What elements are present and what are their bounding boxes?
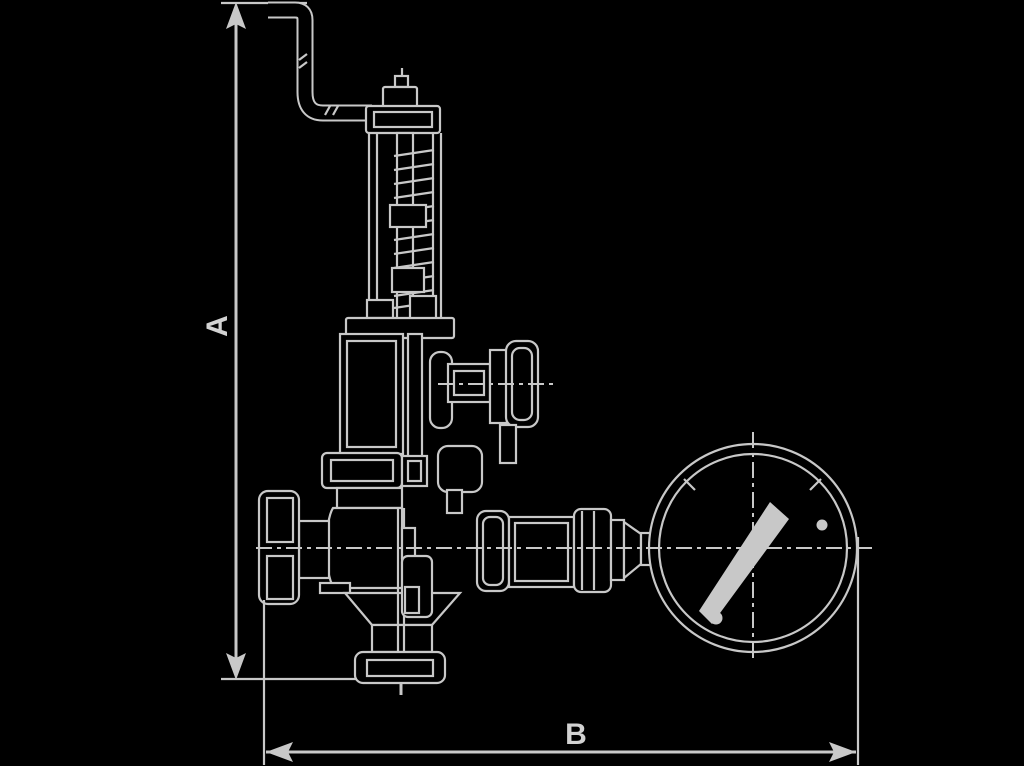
branch-elbow [438, 446, 482, 492]
reducer-cone [624, 522, 641, 578]
upper-body [340, 334, 422, 458]
body-port [402, 528, 415, 558]
gauge-dial-dot-right [817, 520, 828, 531]
union-flange [477, 511, 509, 591]
dimension-b-label: B [565, 718, 587, 751]
spring-lower-nut [392, 268, 424, 292]
body-neck [337, 488, 402, 508]
union-body [509, 517, 574, 587]
spring-bottom-block [410, 296, 436, 320]
knob-hub [490, 350, 507, 423]
gauge-dial-dot-left [710, 612, 723, 625]
drain-boss [402, 528, 432, 617]
dimension-a-label: A [201, 315, 234, 337]
body-ledge [320, 583, 350, 593]
gauge-union [477, 509, 654, 592]
spring-adjuster-nut [390, 205, 426, 227]
drawing-canvas: A B [0, 0, 1024, 766]
upper-flange [322, 453, 427, 488]
handwheel-stem [299, 521, 329, 578]
valve-body [320, 488, 402, 593]
branch-downpipe [447, 490, 462, 513]
test-lever [268, 10, 372, 115]
knob-downpipe [500, 425, 516, 463]
cap-nub [383, 87, 417, 107]
union-nut [574, 509, 611, 592]
outlet-neck [372, 625, 432, 652]
spring-assembly [367, 133, 441, 320]
valve-technical-drawing: A B [0, 0, 1024, 766]
union-disc [611, 520, 624, 580]
side-knob [430, 341, 538, 513]
base-flange [355, 652, 445, 683]
cap-pin-base [395, 76, 408, 87]
bonnet-tube [408, 334, 422, 458]
spring-bottom-plate [367, 300, 393, 318]
bonnet-cap [366, 106, 440, 133]
bonnet-top [366, 68, 440, 133]
